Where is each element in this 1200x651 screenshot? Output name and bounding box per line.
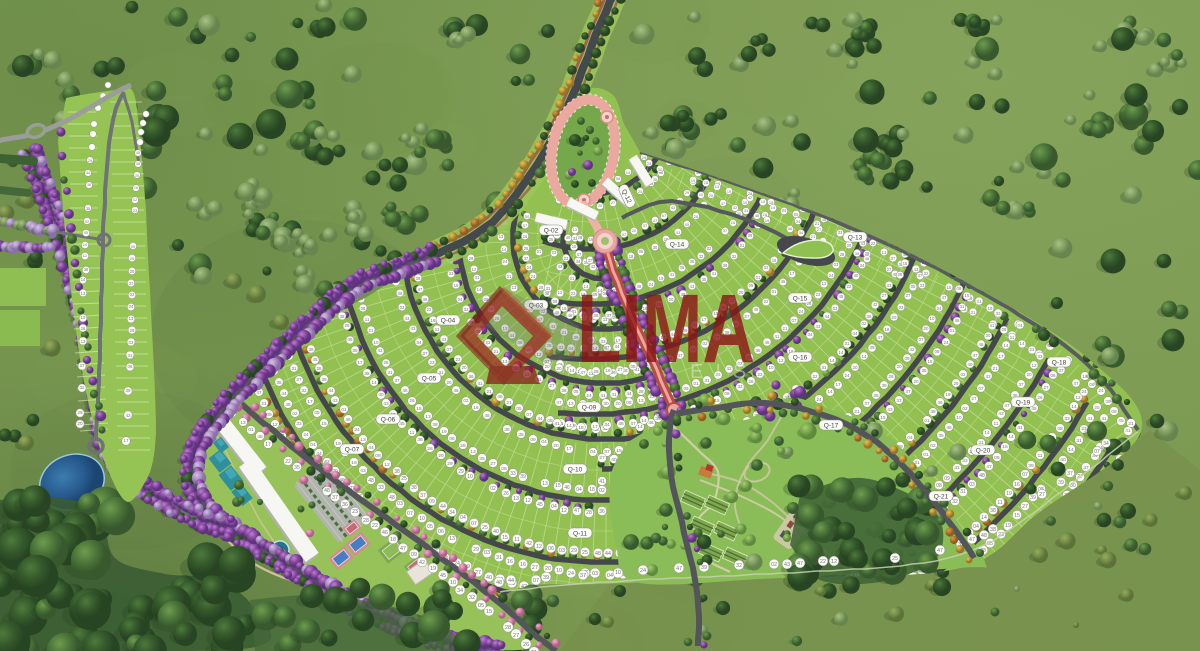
- svg-text:32: 32: [736, 563, 742, 569]
- svg-text:21: 21: [992, 366, 998, 371]
- svg-text:27: 27: [599, 455, 605, 461]
- svg-text:15: 15: [1014, 513, 1020, 519]
- svg-text:20: 20: [556, 366, 562, 371]
- svg-text:07: 07: [446, 347, 452, 352]
- svg-text:40: 40: [1060, 457, 1066, 463]
- svg-text:19: 19: [626, 171, 630, 175]
- svg-text:36: 36: [755, 348, 761, 353]
- svg-text:14: 14: [984, 430, 990, 436]
- svg-text:34: 34: [576, 259, 581, 264]
- svg-text:08: 08: [547, 418, 553, 424]
- svg-text:40: 40: [493, 529, 499, 535]
- svg-text:31: 31: [844, 341, 850, 346]
- svg-text:14: 14: [477, 287, 482, 292]
- svg-text:10: 10: [930, 316, 935, 321]
- svg-text:19: 19: [454, 283, 459, 288]
- svg-text:47: 47: [942, 295, 947, 300]
- svg-text:47: 47: [878, 335, 883, 340]
- svg-text:26: 26: [694, 214, 699, 219]
- svg-text:13: 13: [425, 414, 431, 419]
- svg-text:02: 02: [292, 411, 298, 416]
- svg-text:17: 17: [265, 442, 271, 448]
- svg-text:43: 43: [676, 230, 681, 235]
- svg-text:44: 44: [605, 551, 611, 557]
- svg-text:10: 10: [556, 568, 562, 574]
- svg-text:03: 03: [833, 306, 838, 311]
- svg-text:33: 33: [296, 421, 302, 427]
- svg-text:07: 07: [918, 337, 924, 342]
- svg-text:13: 13: [449, 536, 455, 542]
- svg-text:37: 37: [580, 573, 586, 579]
- svg-text:14: 14: [861, 354, 867, 359]
- svg-text:21: 21: [493, 349, 499, 354]
- svg-text:16: 16: [1014, 482, 1020, 488]
- svg-text:36: 36: [599, 509, 605, 515]
- svg-text:33: 33: [1038, 354, 1043, 359]
- svg-text:36: 36: [468, 374, 474, 379]
- svg-text:48: 48: [453, 388, 459, 393]
- svg-text:24: 24: [531, 274, 536, 279]
- svg-text:45: 45: [440, 573, 446, 579]
- svg-text:46: 46: [955, 318, 960, 323]
- svg-text:40: 40: [566, 235, 571, 240]
- svg-text:46: 46: [382, 530, 388, 536]
- svg-text:15: 15: [714, 398, 720, 403]
- svg-text:23: 23: [429, 360, 435, 365]
- svg-text:39: 39: [543, 575, 549, 581]
- svg-text:24: 24: [1081, 389, 1087, 394]
- svg-text:36: 36: [342, 502, 348, 508]
- svg-text:46: 46: [978, 342, 984, 347]
- svg-text:22: 22: [485, 340, 491, 345]
- svg-text:14: 14: [569, 368, 575, 373]
- svg-text:24: 24: [844, 373, 850, 378]
- svg-text:41: 41: [1125, 428, 1131, 434]
- svg-text:14: 14: [1008, 434, 1014, 440]
- svg-text:02: 02: [930, 443, 936, 449]
- svg-text:19: 19: [1005, 523, 1011, 529]
- svg-text:24: 24: [354, 427, 360, 433]
- svg-text:04: 04: [973, 524, 979, 530]
- svg-text:29: 29: [642, 156, 646, 160]
- svg-text:46: 46: [764, 340, 770, 345]
- svg-text:26: 26: [427, 446, 433, 452]
- svg-text:20: 20: [892, 315, 897, 320]
- svg-text:21: 21: [1128, 421, 1134, 427]
- svg-text:44: 44: [508, 578, 514, 584]
- svg-text:31: 31: [971, 310, 976, 315]
- svg-text:46: 46: [345, 417, 351, 423]
- svg-text:09: 09: [1002, 327, 1007, 332]
- svg-text:13: 13: [502, 359, 508, 364]
- svg-text:22: 22: [757, 372, 763, 377]
- svg-text:15: 15: [927, 359, 933, 364]
- svg-text:44: 44: [328, 388, 334, 393]
- svg-text:04: 04: [527, 265, 532, 270]
- svg-text:47: 47: [1073, 381, 1079, 386]
- svg-text:47: 47: [556, 400, 562, 405]
- svg-text:38: 38: [340, 314, 345, 319]
- svg-text:28: 28: [578, 235, 583, 240]
- svg-text:21: 21: [854, 409, 860, 414]
- svg-text:15: 15: [555, 483, 561, 489]
- svg-text:38: 38: [990, 527, 996, 533]
- svg-text:36: 36: [423, 297, 428, 302]
- svg-text:32: 32: [469, 595, 475, 601]
- svg-text:37: 37: [394, 378, 400, 383]
- svg-text:12: 12: [384, 462, 390, 468]
- svg-text:34: 34: [416, 340, 422, 345]
- svg-text:38: 38: [276, 380, 282, 385]
- svg-text:13: 13: [513, 496, 519, 502]
- svg-text:48: 48: [865, 256, 870, 261]
- svg-text:10: 10: [572, 244, 577, 249]
- svg-text:22: 22: [820, 559, 826, 565]
- svg-text:09: 09: [530, 437, 536, 443]
- svg-text:01: 01: [537, 249, 542, 254]
- svg-text:40: 40: [967, 362, 973, 367]
- svg-text:14: 14: [566, 423, 572, 429]
- svg-text:11: 11: [994, 421, 999, 427]
- svg-text:28: 28: [840, 252, 845, 257]
- svg-text:34: 34: [796, 219, 801, 224]
- svg-text:07: 07: [662, 213, 667, 218]
- svg-text:20: 20: [615, 401, 621, 406]
- svg-text:31: 31: [960, 304, 965, 309]
- svg-text:29: 29: [953, 381, 959, 386]
- svg-text:39: 39: [1030, 495, 1036, 501]
- svg-text:31: 31: [496, 555, 502, 561]
- svg-text:18: 18: [589, 487, 595, 493]
- svg-text:37: 37: [604, 449, 610, 455]
- svg-text:24: 24: [503, 259, 508, 264]
- svg-text:04: 04: [853, 331, 858, 336]
- svg-text:29: 29: [571, 548, 577, 554]
- svg-text:45: 45: [781, 279, 786, 284]
- svg-text:20: 20: [632, 228, 637, 233]
- svg-text:42: 42: [591, 264, 596, 269]
- svg-text:31: 31: [291, 366, 297, 371]
- svg-text:07: 07: [526, 412, 532, 417]
- svg-text:20: 20: [852, 365, 858, 370]
- svg-text:28: 28: [363, 518, 369, 524]
- svg-text:27: 27: [1022, 504, 1028, 510]
- svg-text:12: 12: [822, 281, 827, 286]
- svg-text:48: 48: [484, 413, 490, 418]
- svg-text:47: 47: [797, 561, 803, 567]
- svg-text:48: 48: [324, 488, 330, 494]
- svg-text:33: 33: [920, 283, 925, 288]
- svg-text:07: 07: [533, 578, 539, 584]
- svg-text:32: 32: [301, 388, 307, 393]
- svg-text:45: 45: [839, 294, 844, 299]
- svg-text:09: 09: [398, 291, 403, 296]
- svg-text:04: 04: [541, 439, 547, 445]
- svg-text:26: 26: [888, 374, 894, 379]
- svg-text:10: 10: [373, 340, 379, 345]
- svg-text:35: 35: [690, 259, 695, 264]
- svg-text:16: 16: [731, 220, 736, 225]
- svg-text:34: 34: [449, 510, 455, 516]
- svg-text:27: 27: [513, 633, 519, 639]
- svg-text:21: 21: [811, 234, 816, 239]
- svg-text:06: 06: [680, 265, 685, 270]
- svg-text:16: 16: [763, 212, 768, 217]
- svg-text:35: 35: [294, 465, 300, 471]
- svg-text:47: 47: [1004, 403, 1010, 408]
- svg-text:42: 42: [909, 347, 915, 352]
- svg-text:04: 04: [607, 573, 613, 579]
- svg-text:11: 11: [997, 500, 1002, 506]
- svg-text:12: 12: [1075, 395, 1081, 400]
- svg-text:24: 24: [568, 571, 574, 577]
- svg-text:23: 23: [816, 292, 821, 297]
- svg-text:20: 20: [913, 379, 919, 384]
- svg-text:11: 11: [410, 430, 415, 436]
- svg-text:05: 05: [639, 249, 644, 254]
- svg-text:09: 09: [944, 476, 950, 482]
- svg-text:20: 20: [553, 443, 559, 449]
- svg-text:16: 16: [520, 562, 526, 568]
- svg-text:05: 05: [994, 455, 1000, 461]
- svg-text:43: 43: [411, 326, 416, 331]
- svg-text:41: 41: [1017, 425, 1023, 431]
- svg-text:46: 46: [618, 421, 624, 427]
- svg-text:39: 39: [416, 276, 421, 281]
- svg-text:37: 37: [864, 401, 870, 406]
- svg-text:01: 01: [570, 276, 575, 281]
- svg-text:04: 04: [458, 297, 463, 302]
- svg-text:25: 25: [892, 556, 898, 562]
- svg-text:47: 47: [905, 389, 911, 394]
- svg-text:19: 19: [1006, 491, 1012, 497]
- svg-text:14: 14: [981, 515, 987, 521]
- svg-text:24: 24: [303, 432, 309, 438]
- svg-text:04: 04: [551, 504, 557, 510]
- svg-text:38: 38: [432, 422, 438, 428]
- svg-text:19: 19: [765, 218, 769, 223]
- svg-text:32: 32: [737, 384, 743, 389]
- svg-text:43: 43: [558, 264, 563, 269]
- svg-text:01: 01: [950, 328, 955, 333]
- svg-text:31: 31: [387, 370, 393, 375]
- svg-text:13: 13: [240, 420, 246, 426]
- svg-text:35: 35: [352, 348, 358, 353]
- svg-text:37: 37: [643, 223, 648, 228]
- svg-text:28: 28: [460, 443, 466, 449]
- svg-text:39: 39: [520, 474, 526, 480]
- svg-text:41: 41: [1101, 416, 1107, 421]
- svg-text:47: 47: [986, 464, 992, 470]
- svg-text:09: 09: [411, 552, 417, 558]
- svg-text:48: 48: [389, 495, 395, 501]
- svg-text:27: 27: [611, 200, 615, 205]
- svg-text:08: 08: [553, 299, 558, 304]
- svg-text:35: 35: [921, 368, 927, 373]
- svg-text:30: 30: [653, 245, 658, 250]
- svg-text:16: 16: [562, 306, 567, 311]
- svg-text:34: 34: [457, 588, 463, 594]
- svg-text:38: 38: [411, 485, 417, 491]
- svg-text:26: 26: [523, 642, 529, 648]
- svg-text:13: 13: [360, 437, 366, 443]
- svg-text:37: 37: [332, 495, 338, 501]
- svg-text:22: 22: [812, 374, 818, 379]
- svg-text:37: 37: [296, 377, 302, 382]
- svg-text:26: 26: [383, 360, 389, 365]
- svg-text:47: 47: [721, 202, 725, 206]
- svg-text:43: 43: [998, 411, 1004, 416]
- svg-text:22: 22: [455, 357, 461, 362]
- svg-text:10: 10: [419, 516, 425, 522]
- svg-text:41: 41: [599, 479, 605, 485]
- svg-text:33: 33: [1064, 416, 1070, 422]
- svg-text:09: 09: [904, 356, 910, 361]
- svg-text:02: 02: [463, 398, 469, 403]
- svg-text:35: 35: [873, 393, 879, 398]
- svg-text:31: 31: [744, 208, 748, 213]
- svg-text:18: 18: [885, 327, 890, 332]
- svg-text:01: 01: [772, 289, 777, 294]
- svg-text:30: 30: [603, 401, 609, 406]
- svg-text:48: 48: [368, 478, 374, 484]
- svg-text:40: 40: [378, 392, 384, 397]
- svg-text:47: 47: [676, 566, 682, 572]
- svg-text:40: 40: [486, 575, 492, 581]
- svg-text:02: 02: [962, 406, 968, 411]
- svg-text:31: 31: [1076, 438, 1082, 444]
- svg-text:03: 03: [400, 305, 405, 310]
- svg-text:25: 25: [401, 476, 407, 482]
- svg-text:11: 11: [514, 537, 519, 543]
- svg-text:18: 18: [578, 425, 584, 431]
- svg-text:47: 47: [400, 546, 406, 552]
- svg-text:41: 41: [990, 323, 995, 328]
- svg-text:13: 13: [638, 398, 644, 403]
- svg-text:32: 32: [962, 458, 968, 464]
- svg-text:46: 46: [648, 420, 654, 426]
- svg-text:40: 40: [854, 273, 859, 278]
- svg-text:27: 27: [906, 293, 911, 298]
- svg-text:45: 45: [685, 222, 690, 227]
- svg-text:48: 48: [257, 434, 263, 440]
- svg-text:27: 27: [549, 383, 555, 388]
- svg-text:21: 21: [486, 389, 492, 394]
- svg-text:08: 08: [1057, 426, 1063, 432]
- svg-text:08: 08: [616, 177, 620, 181]
- svg-text:03: 03: [397, 501, 403, 507]
- svg-text:43: 43: [383, 401, 389, 406]
- svg-text:23: 23: [1030, 347, 1035, 352]
- svg-text:03: 03: [899, 305, 904, 310]
- svg-text:47: 47: [937, 548, 943, 554]
- svg-text:22: 22: [564, 256, 569, 261]
- svg-text:10: 10: [956, 415, 962, 420]
- svg-text:03: 03: [592, 571, 598, 577]
- svg-text:41: 41: [600, 393, 606, 398]
- svg-text:05: 05: [898, 272, 903, 277]
- svg-text:12: 12: [573, 227, 578, 232]
- svg-text:41: 41: [1087, 416, 1093, 421]
- svg-text:05: 05: [911, 284, 916, 289]
- svg-text:38: 38: [364, 371, 370, 376]
- svg-text:42: 42: [873, 302, 878, 307]
- svg-text:17: 17: [790, 271, 795, 276]
- svg-text:22: 22: [427, 307, 432, 312]
- svg-text:30: 30: [986, 333, 991, 338]
- svg-text:42: 42: [526, 541, 532, 547]
- svg-text:45: 45: [312, 357, 318, 362]
- svg-text:10: 10: [699, 193, 703, 197]
- svg-text:35: 35: [867, 314, 872, 319]
- svg-text:01: 01: [923, 452, 929, 458]
- svg-text:17: 17: [566, 446, 572, 452]
- svg-text:22: 22: [764, 299, 769, 304]
- svg-text:01: 01: [507, 274, 512, 279]
- svg-text:46: 46: [946, 425, 952, 431]
- svg-text:38: 38: [394, 469, 400, 475]
- svg-text:01: 01: [740, 243, 745, 248]
- svg-text:43: 43: [442, 337, 447, 342]
- svg-text:01: 01: [341, 407, 347, 412]
- svg-text:24: 24: [799, 309, 804, 314]
- svg-text:14: 14: [1071, 404, 1077, 409]
- svg-text:26: 26: [409, 398, 415, 403]
- svg-text:28: 28: [316, 366, 322, 371]
- svg-text:21: 21: [261, 401, 267, 406]
- svg-text:43: 43: [784, 562, 790, 568]
- svg-text:32: 32: [699, 254, 704, 259]
- svg-text:26: 26: [1037, 395, 1043, 400]
- svg-text:08: 08: [934, 349, 940, 354]
- svg-text:03: 03: [834, 262, 839, 267]
- svg-text:31: 31: [954, 465, 960, 471]
- svg-text:03: 03: [969, 482, 975, 488]
- svg-text:22: 22: [372, 523, 378, 529]
- svg-text:06: 06: [548, 546, 554, 552]
- svg-text:42: 42: [377, 348, 383, 353]
- svg-text:41: 41: [477, 381, 483, 386]
- svg-text:48: 48: [595, 551, 601, 557]
- svg-text:43: 43: [887, 407, 893, 412]
- svg-text:28: 28: [586, 510, 592, 516]
- svg-text:04: 04: [460, 515, 466, 521]
- svg-text:25: 25: [582, 550, 588, 556]
- svg-text:14: 14: [641, 418, 647, 424]
- svg-text:37: 37: [1058, 368, 1064, 373]
- svg-text:12: 12: [525, 498, 531, 504]
- svg-text:27: 27: [490, 461, 496, 467]
- svg-text:12: 12: [778, 358, 784, 363]
- svg-text:08: 08: [361, 306, 366, 311]
- svg-text:03: 03: [484, 550, 490, 556]
- svg-text:38: 38: [990, 508, 996, 514]
- svg-text:15: 15: [1002, 444, 1008, 450]
- svg-text:37: 37: [1018, 382, 1024, 387]
- svg-text:07: 07: [978, 386, 984, 391]
- svg-text:08: 08: [724, 391, 730, 396]
- svg-text:36: 36: [417, 437, 423, 443]
- svg-text:44: 44: [626, 391, 632, 396]
- svg-text:19: 19: [441, 429, 447, 435]
- svg-text:14: 14: [1003, 343, 1009, 348]
- svg-text:24: 24: [586, 393, 592, 398]
- svg-text:39: 39: [1028, 463, 1034, 469]
- svg-text:05: 05: [516, 406, 522, 411]
- svg-text:33: 33: [887, 283, 892, 288]
- svg-text:24: 24: [943, 340, 949, 345]
- svg-text:27: 27: [887, 267, 892, 272]
